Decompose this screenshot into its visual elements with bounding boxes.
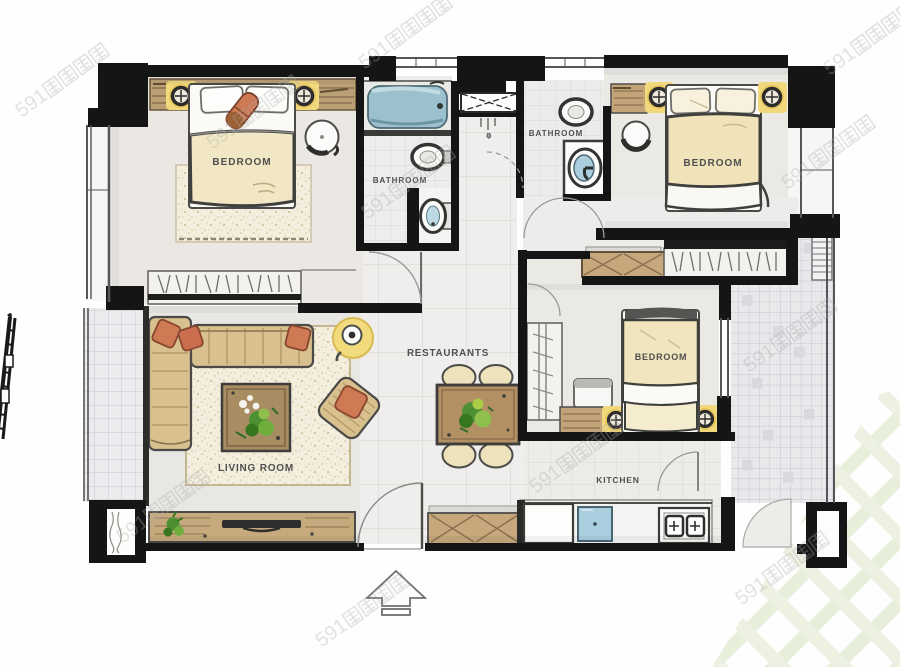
svg-text:BEDROOM: BEDROOM — [683, 158, 742, 169]
svg-text:LIVING ROOM: LIVING ROOM — [218, 463, 294, 474]
svg-text:RESTAURANTS: RESTAURANTS — [407, 348, 489, 359]
svg-text:KITCHEN: KITCHEN — [596, 475, 639, 485]
svg-text:BEDROOM: BEDROOM — [212, 157, 271, 168]
svg-text:BEDROOM: BEDROOM — [635, 352, 688, 362]
svg-text:BATHROOM: BATHROOM — [529, 129, 584, 138]
